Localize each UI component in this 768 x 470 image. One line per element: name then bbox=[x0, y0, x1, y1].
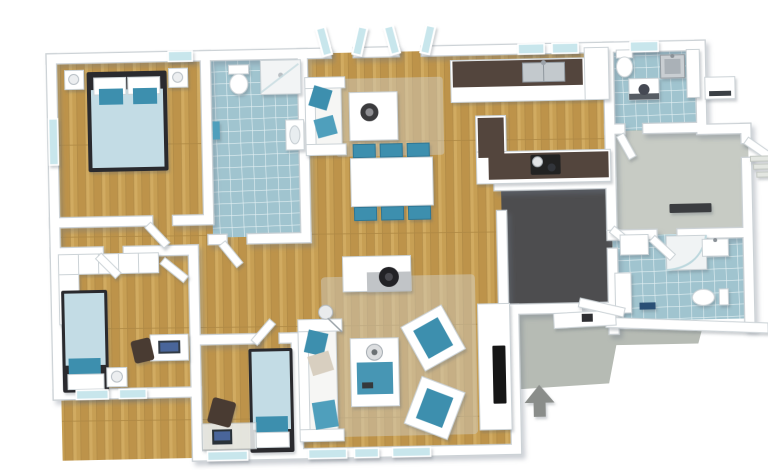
floor-entry-carpet bbox=[501, 181, 614, 309]
tall-cabinet bbox=[584, 47, 609, 99]
window bbox=[119, 389, 146, 399]
bed-pillow bbox=[255, 432, 289, 448]
accent-cushion bbox=[69, 358, 101, 375]
floor-plan-screenshot bbox=[0, 0, 768, 470]
heat-pump-vent bbox=[709, 91, 731, 96]
toilet-bowl bbox=[692, 289, 714, 305]
wall-segment bbox=[55, 252, 98, 253]
table-lamp bbox=[173, 72, 183, 82]
window bbox=[392, 447, 430, 457]
dining-chair bbox=[353, 144, 375, 157]
bench-bowl bbox=[582, 314, 593, 322]
plan-root bbox=[47, 17, 768, 464]
table-lamp bbox=[69, 74, 79, 84]
wall-segment bbox=[612, 253, 613, 307]
sofa-armrest bbox=[300, 429, 344, 442]
window bbox=[48, 119, 58, 165]
wall-segment bbox=[682, 232, 748, 233]
wall-segment bbox=[196, 392, 197, 456]
island-countertop bbox=[478, 117, 505, 158]
sofa-armrest bbox=[306, 144, 346, 156]
wall-segment bbox=[514, 309, 517, 449]
floor-lamp bbox=[318, 305, 332, 319]
accent-cushion bbox=[256, 416, 288, 433]
wall-segment bbox=[252, 238, 306, 239]
entry-step bbox=[754, 164, 768, 169]
single-bed-mattress bbox=[64, 293, 105, 366]
wall-segment bbox=[514, 308, 578, 309]
wall-segment bbox=[747, 162, 750, 324]
dining-chair bbox=[407, 143, 429, 156]
laundry-counter bbox=[686, 49, 700, 97]
floor-plan-canvas bbox=[0, 0, 768, 470]
wall-segment bbox=[358, 52, 394, 53]
remote bbox=[362, 382, 373, 388]
window bbox=[354, 448, 378, 458]
accent-cushion bbox=[133, 88, 157, 104]
window bbox=[168, 51, 192, 62]
window bbox=[308, 449, 346, 459]
wall-segment bbox=[205, 56, 208, 218]
window bbox=[76, 390, 108, 400]
entry-step bbox=[750, 156, 768, 162]
entrance-arrow bbox=[524, 384, 555, 417]
laptop-screen bbox=[214, 431, 230, 440]
bed-pillow bbox=[68, 374, 104, 390]
wall-segment bbox=[648, 127, 702, 128]
laundry-sink-basin bbox=[664, 59, 680, 74]
sink-basin bbox=[290, 126, 300, 144]
accent-cushion bbox=[99, 88, 123, 104]
wall-segment bbox=[193, 250, 196, 394]
wall-segment bbox=[195, 339, 254, 340]
toilet-bowl bbox=[616, 57, 632, 77]
wall-segment bbox=[178, 220, 209, 221]
wall-segment bbox=[128, 250, 193, 251]
kettle bbox=[532, 157, 542, 167]
doormat bbox=[669, 203, 711, 213]
window bbox=[630, 41, 658, 52]
tv-flatscreen bbox=[492, 345, 506, 403]
dining-chair bbox=[408, 206, 430, 219]
dining-chair bbox=[381, 207, 403, 220]
dining-chair bbox=[354, 207, 376, 220]
entry-step bbox=[757, 172, 768, 177]
wall-segment bbox=[55, 221, 148, 223]
dining-table bbox=[350, 157, 433, 207]
sofa-armrest bbox=[305, 77, 345, 89]
dining-chair bbox=[380, 144, 402, 157]
wall-segment bbox=[502, 216, 504, 310]
wall-segment bbox=[702, 128, 746, 129]
window bbox=[208, 451, 248, 461]
towel bbox=[213, 121, 220, 139]
window bbox=[518, 44, 544, 55]
toilet-tank bbox=[719, 289, 728, 305]
window bbox=[552, 43, 578, 54]
sofa-cushion bbox=[312, 400, 339, 430]
bath-mat bbox=[639, 302, 655, 309]
table-lamp bbox=[111, 371, 122, 382]
window-box bbox=[620, 234, 648, 255]
toilet-tank bbox=[228, 65, 248, 74]
monitor-screen bbox=[160, 342, 178, 351]
toilet-bowl bbox=[230, 74, 248, 94]
table-runner bbox=[357, 362, 394, 395]
